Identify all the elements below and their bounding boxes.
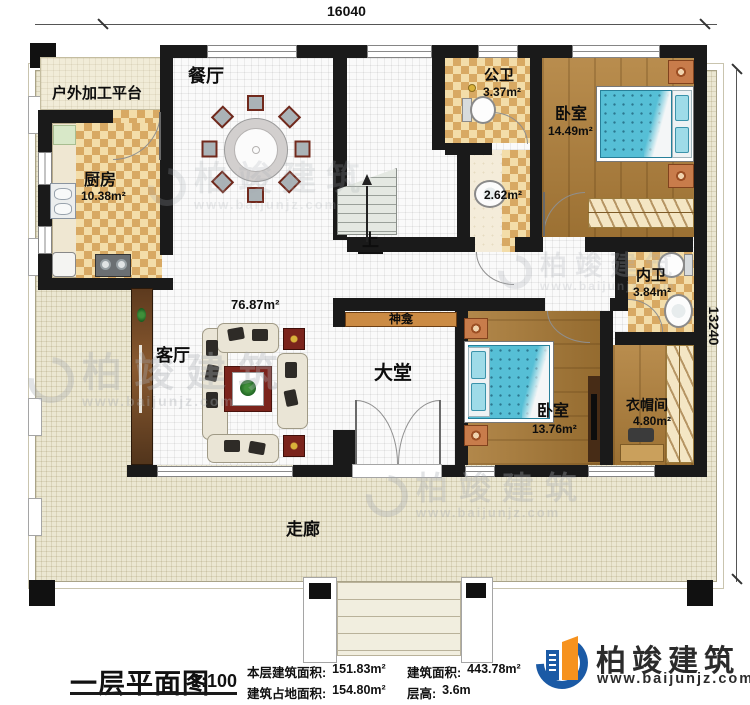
pilaster [28, 398, 42, 436]
stove-burner [116, 259, 127, 270]
room-area-inner-bath: 3.84m² [633, 286, 671, 298]
cushion [224, 440, 240, 452]
door-handle [139, 345, 142, 413]
room-label-bedroom-top: 卧室 [555, 106, 587, 124]
soap-dish-icon [468, 84, 476, 92]
wall [600, 311, 613, 465]
room-area-bedroom-bottom: 13.76m² [532, 423, 577, 435]
pillow [675, 127, 689, 153]
stairs-arrow-head-icon [362, 174, 372, 185]
wardrobe-rail [588, 212, 694, 213]
stat-label: 建筑面积: [407, 662, 461, 681]
room-area-public-bath: 3.37m² [483, 86, 521, 98]
pillow [471, 383, 486, 411]
cushion [285, 362, 297, 378]
stool [628, 428, 654, 442]
nightstand [668, 164, 694, 188]
nightstand [668, 60, 694, 84]
stat-total-area: 建筑面积: 443.78m² [407, 662, 521, 681]
room-area-kitchen: 10.38m² [81, 190, 126, 202]
kitchen-counter-mat [53, 125, 76, 145]
kitchen-sink-basin [54, 203, 72, 215]
wall [585, 237, 693, 252]
tv-icon [591, 394, 597, 440]
drawing-title: 一层平面图 [70, 662, 210, 701]
stat-footprint-area: 建筑占地面积: 154.80m² [247, 683, 386, 702]
door-leaf [159, 112, 161, 160]
nightstand [464, 425, 488, 446]
side-table [283, 435, 305, 457]
stat-floor-height: 层高: 3.6m [407, 683, 471, 702]
window [157, 466, 293, 477]
wall [293, 465, 352, 477]
room-area-wash: 2.62m² [484, 189, 522, 201]
pilaster [28, 498, 42, 536]
wall [160, 45, 173, 255]
kitchen-sink-basin [54, 188, 72, 200]
door-leaf [439, 400, 441, 464]
wall [530, 58, 542, 252]
door-leaf [355, 400, 357, 464]
dimension-tick [731, 63, 742, 74]
plant-icon [240, 380, 256, 396]
wall [127, 465, 157, 477]
dimension-tick [731, 573, 742, 584]
dining-chair [295, 141, 311, 158]
toilet [470, 96, 496, 124]
dresser [620, 444, 664, 462]
wall [442, 465, 465, 477]
room-label-inner-bath: 内卫 [636, 268, 666, 285]
entry-threshold [352, 464, 442, 478]
side-table [283, 328, 305, 350]
floor-plan: 神龛 柏竣建筑 www.baijunjz.com 柏竣建筑 www.baijun… [0, 0, 750, 705]
wall [615, 252, 628, 300]
dining-table-center [252, 146, 260, 154]
dimension-line-right [736, 70, 737, 582]
wall [333, 430, 355, 465]
title-underline [70, 692, 237, 695]
wall [432, 58, 445, 150]
cushion [206, 392, 218, 408]
room-label-hall: 大堂 [374, 364, 412, 385]
corner-post [29, 580, 55, 606]
window [367, 45, 432, 58]
wall [38, 110, 52, 152]
closet-rail [679, 345, 680, 463]
door-leaf [543, 192, 545, 236]
room-area-bedroom-top: 14.49m² [548, 125, 593, 137]
wall [515, 237, 543, 252]
room-label-dining: 餐厅 [188, 67, 224, 87]
stairs-up-label: 上 [358, 232, 383, 254]
sofa [217, 323, 279, 353]
stat-label: 本层建筑面积: [247, 662, 326, 681]
brand-logo-svg [532, 634, 590, 698]
wash-basin [664, 294, 693, 328]
drawing-scale: 1:100 [191, 671, 237, 692]
dimension-height: 13240 [706, 296, 722, 356]
pillow [675, 95, 689, 121]
room-label-shrine: 神龛 [389, 313, 413, 326]
wall [615, 332, 707, 345]
cushion [252, 329, 268, 341]
window [38, 226, 52, 254]
window [588, 466, 655, 477]
entry-steps [337, 582, 461, 656]
room-label-kitchen: 厨房 [84, 172, 116, 190]
wall [518, 45, 572, 58]
wall [333, 298, 462, 311]
corner-post [687, 580, 713, 606]
wall [694, 45, 707, 477]
refrigerator [52, 252, 76, 277]
sofa [207, 434, 279, 463]
dining-chair [247, 95, 264, 111]
brand-url: www.baijunjz.com [597, 671, 750, 687]
pillow [471, 351, 486, 379]
bed-blanket-fold [644, 91, 671, 157]
wall [462, 298, 545, 311]
closet [666, 345, 694, 463]
wall [655, 465, 707, 477]
porch-column-cap [309, 583, 331, 599]
dining-chair [247, 187, 264, 203]
dimension-width: 16040 [327, 3, 366, 19]
stat-value: 154.80m² [332, 683, 386, 702]
stat-value: 3.6m [442, 683, 471, 702]
room-label-bedroom-bottom: 卧室 [537, 403, 569, 421]
window [38, 152, 52, 185]
cushion [248, 441, 266, 456]
room-label-corridor: 走廊 [286, 521, 320, 540]
wall [432, 45, 478, 58]
room-label-cloakroom: 衣帽间 [626, 398, 668, 413]
wall [495, 465, 588, 477]
window [478, 45, 518, 58]
stat-floor-area: 本层建筑面积: 151.83m² [247, 662, 386, 681]
room-label-public-bath: 公卫 [484, 68, 514, 85]
window [572, 45, 660, 58]
stat-label: 层高: [407, 683, 436, 702]
porch-column-cap [466, 583, 486, 598]
room-label-outdoor-platform: 户外加工平台 [52, 86, 142, 103]
window [207, 45, 297, 58]
stat-value: 443.78m² [467, 662, 521, 681]
shrine-cabinet: 神龛 [345, 312, 457, 327]
door-decor-leaf-icon [137, 308, 146, 322]
cushion [206, 340, 218, 356]
room-area-cloakroom: 4.80m² [633, 415, 671, 427]
toilet-tank [684, 254, 693, 276]
wall [297, 45, 367, 58]
room-area-living: 76.87m² [231, 298, 279, 311]
dining-chair [202, 141, 218, 158]
stat-label: 建筑占地面积: [247, 683, 326, 702]
window [465, 466, 495, 477]
stat-value: 151.83m² [332, 662, 386, 681]
wall [333, 311, 345, 327]
wardrobe [588, 198, 694, 228]
room-label-living: 客厅 [156, 347, 190, 366]
nightstand [464, 318, 488, 339]
stove-burner [100, 259, 111, 270]
dimension-line-top [35, 24, 717, 25]
brand-logo-icon [532, 634, 590, 698]
